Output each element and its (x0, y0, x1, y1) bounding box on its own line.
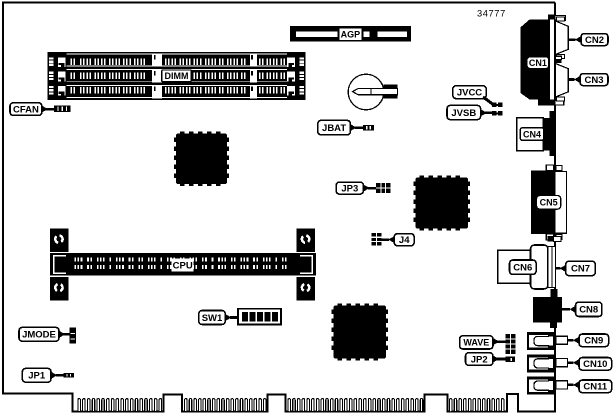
svg-text:JP2: JP2 (471, 354, 488, 365)
svg-text:CN11: CN11 (583, 382, 607, 393)
svg-text:JP1: JP1 (28, 371, 46, 382)
svg-text:WAVE: WAVE (463, 338, 489, 348)
svg-text:SW1: SW1 (202, 313, 223, 324)
svg-text:CN9: CN9 (584, 336, 603, 347)
svg-text:CN10: CN10 (583, 359, 607, 370)
svg-text:CN1: CN1 (529, 58, 547, 68)
svg-text:JVSB: JVSB (451, 108, 476, 119)
svg-text:CN3: CN3 (584, 75, 603, 86)
svg-text:CN2: CN2 (585, 35, 604, 46)
svg-text:JBAT: JBAT (322, 123, 346, 134)
svg-text:CN7: CN7 (571, 264, 590, 275)
svg-text:CN6: CN6 (513, 263, 532, 274)
svg-text:CFAN: CFAN (13, 104, 39, 115)
svg-text:34777: 34777 (477, 9, 506, 19)
svg-text:AGP: AGP (341, 30, 361, 40)
svg-text:CN4: CN4 (523, 129, 541, 139)
svg-text:J4: J4 (399, 235, 410, 246)
svg-text:JMODE: JMODE (22, 330, 56, 341)
svg-text:JVCC: JVCC (457, 88, 482, 99)
svg-text:JP3: JP3 (341, 183, 358, 194)
svg-text:CPU: CPU (173, 260, 193, 271)
svg-text:CN8: CN8 (579, 305, 598, 316)
svg-text:CN5: CN5 (540, 198, 558, 208)
svg-text:DIMM: DIMM (165, 71, 189, 81)
